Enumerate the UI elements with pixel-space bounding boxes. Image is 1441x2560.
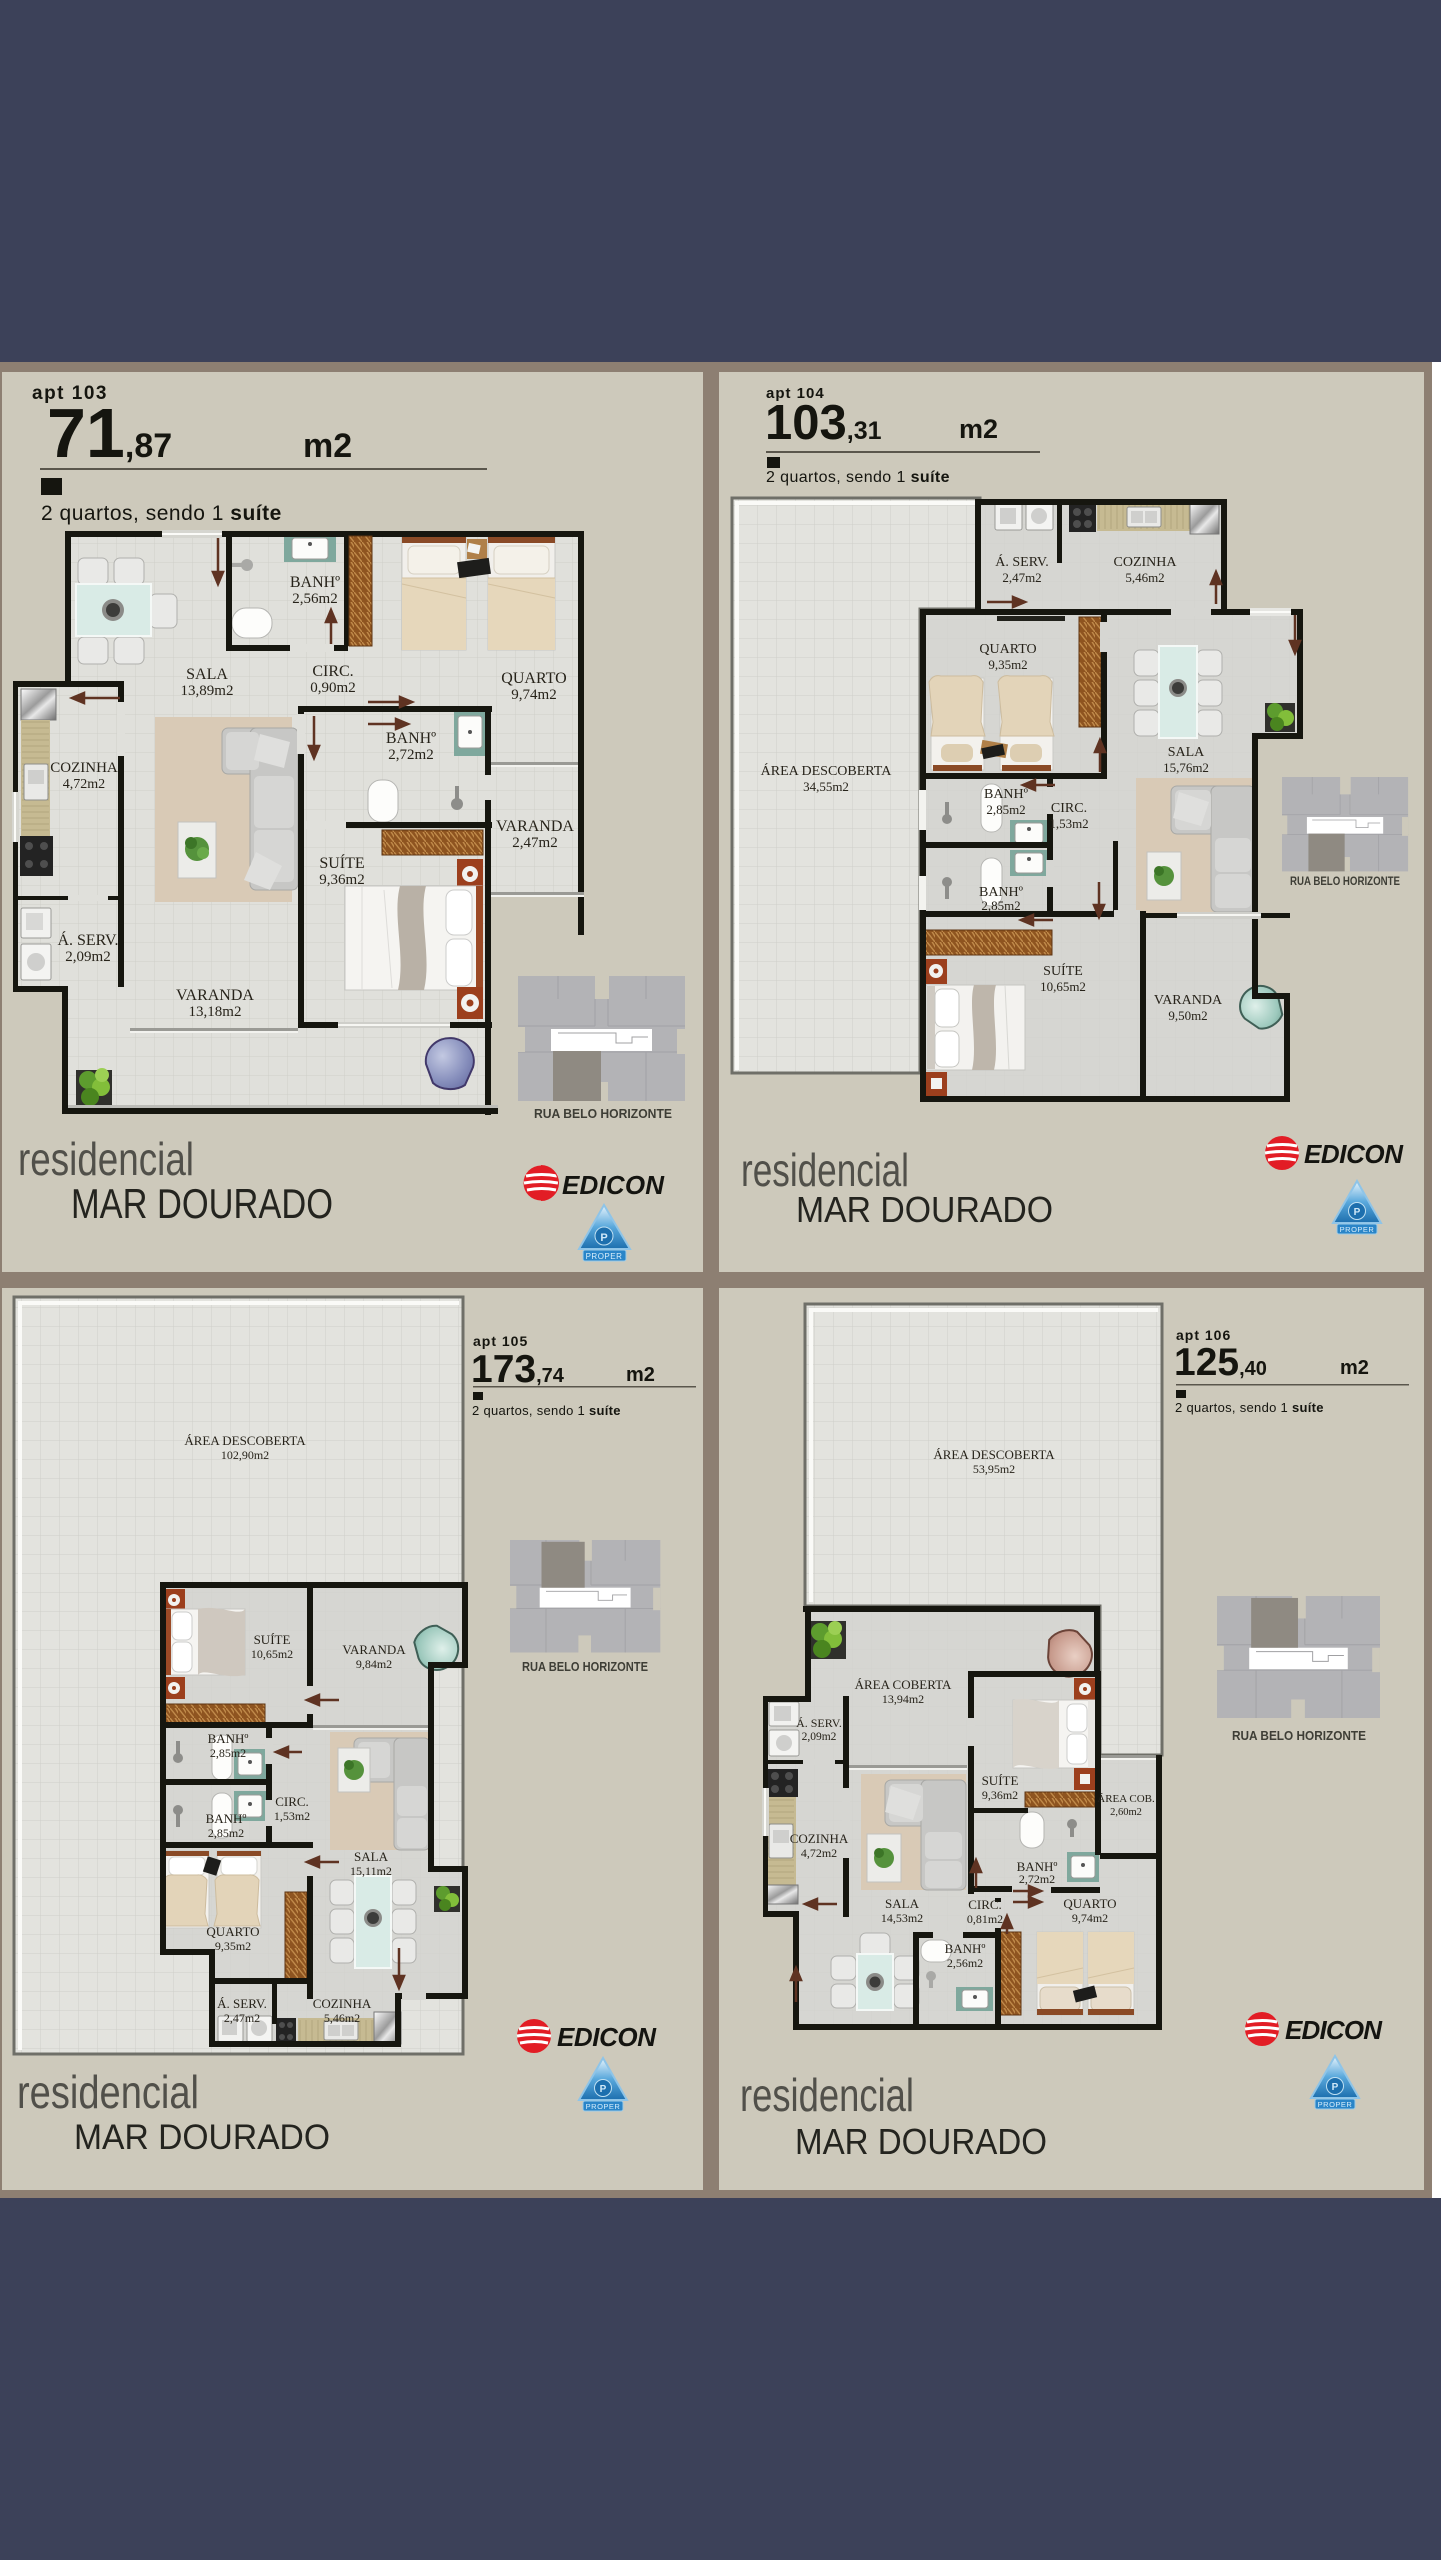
svg-text:2,56m2: 2,56m2 xyxy=(947,1956,983,1970)
svg-text:P: P xyxy=(1354,1207,1361,1218)
svg-text:COZINHA: COZINHA xyxy=(313,1996,372,2011)
svg-text:9,35m2: 9,35m2 xyxy=(215,1939,251,1953)
svg-text:P: P xyxy=(600,1232,607,1244)
svg-text:0,90m2: 0,90m2 xyxy=(310,680,355,696)
svg-text:5,46m2: 5,46m2 xyxy=(324,2011,360,2025)
svg-text:CIRC.: CIRC. xyxy=(968,1897,1002,1912)
svg-text:RUA BELO HORIZONTE: RUA BELO HORIZONTE xyxy=(1290,874,1400,888)
svg-text:2,85m2: 2,85m2 xyxy=(986,802,1025,817)
svg-text:PROPER: PROPER xyxy=(1318,2100,1353,2109)
svg-text:BANHº: BANHº xyxy=(208,1731,249,1746)
svg-text:2,47m2: 2,47m2 xyxy=(224,2011,260,2025)
svg-text:2,85m2: 2,85m2 xyxy=(208,1826,244,1840)
svg-text:102,90m2: 102,90m2 xyxy=(221,1448,269,1462)
svg-text:SUÍTE: SUÍTE xyxy=(1043,962,1083,979)
svg-text:PROPER: PROPER xyxy=(1340,1225,1375,1234)
svg-text:BANHº: BANHº xyxy=(984,787,1029,802)
svg-text:125,40: 125,40 xyxy=(1174,1341,1267,1384)
svg-text:m2: m2 xyxy=(626,1364,655,1386)
svg-text:2,47m2: 2,47m2 xyxy=(512,835,557,851)
svg-text:EDICON: EDICON xyxy=(562,1170,665,1200)
svg-text:9,36m2: 9,36m2 xyxy=(319,872,364,888)
svg-text:2,72m2: 2,72m2 xyxy=(1019,1872,1055,1886)
svg-text:13,18m2: 13,18m2 xyxy=(189,1004,242,1020)
svg-text:10,65m2: 10,65m2 xyxy=(251,1647,293,1661)
svg-text:apt 105: apt 105 xyxy=(473,1333,528,1349)
svg-text:QUARTO: QUARTO xyxy=(979,642,1036,657)
svg-text:PROPER: PROPER xyxy=(586,2102,621,2111)
svg-text:15,11m2: 15,11m2 xyxy=(350,1864,392,1878)
svg-text:SALA: SALA xyxy=(186,666,228,683)
svg-text:2 quartos, sendo 1 suíte: 2 quartos, sendo 1 suíte xyxy=(41,502,282,525)
svg-text:5,46m2: 5,46m2 xyxy=(1125,570,1164,585)
svg-text:14,53m2: 14,53m2 xyxy=(881,1911,923,1925)
svg-text:71,87: 71,87 xyxy=(47,394,172,472)
svg-text:2 quartos, sendo 1 suíte: 2 quartos, sendo 1 suíte xyxy=(1175,1400,1324,1415)
svg-text:9,84m2: 9,84m2 xyxy=(356,1657,392,1671)
svg-text:4,72m2: 4,72m2 xyxy=(63,777,105,792)
svg-text:2,47m2: 2,47m2 xyxy=(1002,570,1041,585)
svg-text:MAR DOURADO: MAR DOURADO xyxy=(795,2121,1047,2162)
svg-text:COZINHA: COZINHA xyxy=(790,1831,849,1846)
svg-text:34,55m2: 34,55m2 xyxy=(803,779,849,794)
svg-text:MAR DOURADO: MAR DOURADO xyxy=(71,1180,333,1227)
svg-text:2,72m2: 2,72m2 xyxy=(388,747,433,763)
svg-text:MAR DOURADO: MAR DOURADO xyxy=(74,2118,330,2157)
svg-text:9,35m2: 9,35m2 xyxy=(988,657,1027,672)
svg-text:13,89m2: 13,89m2 xyxy=(181,683,234,699)
svg-text:RUA BELO HORIZONTE: RUA BELO HORIZONTE xyxy=(1232,1728,1366,1743)
svg-text:BANHº: BANHº xyxy=(206,1811,247,1826)
svg-text:VARANDA: VARANDA xyxy=(176,987,254,1004)
svg-text:2,09m2: 2,09m2 xyxy=(65,949,110,965)
svg-text:QUARTO: QUARTO xyxy=(1063,1896,1116,1911)
svg-text:1,53m2: 1,53m2 xyxy=(274,1809,310,1823)
svg-text:9,74m2: 9,74m2 xyxy=(1072,1911,1108,1925)
svg-text:2,09m2: 2,09m2 xyxy=(802,1731,837,1743)
svg-text:EDICON: EDICON xyxy=(1285,2015,1383,2045)
svg-text:ÁREA DESCOBERTA: ÁREA DESCOBERTA xyxy=(184,1433,306,1448)
svg-text:SUÍTE: SUÍTE xyxy=(319,853,364,872)
svg-text:m2: m2 xyxy=(303,427,352,465)
svg-text:Á. SERV.: Á. SERV. xyxy=(796,1716,842,1730)
svg-text:103,31: 103,31 xyxy=(765,396,882,450)
svg-text:BANHº: BANHº xyxy=(386,730,436,747)
svg-text:residencial: residencial xyxy=(17,2066,199,2118)
svg-text:MAR DOURADO: MAR DOURADO xyxy=(796,1189,1053,1230)
svg-text:9,50m2: 9,50m2 xyxy=(1168,1008,1207,1023)
svg-text:173,74: 173,74 xyxy=(471,1348,565,1391)
svg-text:PROPER: PROPER xyxy=(586,1252,623,1261)
svg-text:VARANDA: VARANDA xyxy=(342,1642,406,1657)
svg-text:13,94m2: 13,94m2 xyxy=(882,1692,924,1706)
svg-text:ÁREA DESCOBERTA: ÁREA DESCOBERTA xyxy=(761,762,893,779)
svg-text:m2: m2 xyxy=(959,414,998,444)
svg-text:2,60m2: 2,60m2 xyxy=(1110,1807,1142,1818)
svg-text:Á. SERV.: Á. SERV. xyxy=(57,930,118,949)
svg-text:ÁREA COBERTA: ÁREA COBERTA xyxy=(855,1677,952,1692)
svg-text:9,74m2: 9,74m2 xyxy=(511,687,556,703)
svg-text:VARANDA: VARANDA xyxy=(496,818,574,835)
svg-text:ÁREA DESCOBERTA: ÁREA DESCOBERTA xyxy=(933,1447,1055,1462)
svg-text:VARANDA: VARANDA xyxy=(1154,993,1223,1008)
svg-text:2 quartos, sendo 1 suíte: 2 quartos, sendo 1 suíte xyxy=(472,1403,621,1418)
svg-text:EDICON: EDICON xyxy=(1304,1139,1404,1169)
svg-text:Á. SERV.: Á. SERV. xyxy=(995,553,1048,570)
svg-text:2,85m2: 2,85m2 xyxy=(981,898,1020,913)
svg-text:0,81m2: 0,81m2 xyxy=(967,1912,1003,1926)
svg-text:QUARTO: QUARTO xyxy=(206,1924,259,1939)
svg-text:QUARTO: QUARTO xyxy=(501,670,566,687)
svg-text:residencial: residencial xyxy=(740,2069,914,2121)
svg-text:15,76m2: 15,76m2 xyxy=(1163,760,1209,775)
svg-text:COZINHA: COZINHA xyxy=(1114,555,1178,570)
svg-text:2,56m2: 2,56m2 xyxy=(292,591,337,607)
svg-text:P: P xyxy=(1332,2082,1339,2093)
svg-text:RUA BELO HORIZONTE: RUA BELO HORIZONTE xyxy=(522,1660,648,1674)
svg-text:2 quartos, sendo 1 suíte: 2 quartos, sendo 1 suíte xyxy=(766,469,950,486)
svg-text:9,36m2: 9,36m2 xyxy=(982,1788,1018,1802)
svg-text:residencial: residencial xyxy=(18,1133,194,1185)
svg-text:COZINHA: COZINHA xyxy=(50,760,118,776)
svg-text:2,85m2: 2,85m2 xyxy=(210,1746,246,1760)
svg-text:SALA: SALA xyxy=(885,1896,920,1911)
svg-text:1,53m2: 1,53m2 xyxy=(1049,816,1088,831)
svg-text:SUÍTE: SUÍTE xyxy=(254,1632,291,1647)
svg-text:CIRC.: CIRC. xyxy=(275,1794,309,1809)
svg-text:m2: m2 xyxy=(1340,1357,1369,1379)
svg-text:4,72m2: 4,72m2 xyxy=(801,1846,837,1860)
svg-text:10,65m2: 10,65m2 xyxy=(1040,979,1086,994)
svg-text:Á. SERV.: Á. SERV. xyxy=(217,1996,267,2011)
svg-text:SUÍTE: SUÍTE xyxy=(982,1773,1019,1788)
svg-text:SALA: SALA xyxy=(354,1849,389,1864)
svg-text:RUA BELO HORIZONTE: RUA BELO HORIZONTE xyxy=(534,1106,672,1121)
svg-text:SALA: SALA xyxy=(1168,745,1205,760)
svg-text:53,95m2: 53,95m2 xyxy=(973,1462,1015,1476)
svg-text:CIRC.: CIRC. xyxy=(1051,801,1087,816)
svg-text:BANHº: BANHº xyxy=(290,574,340,591)
svg-text:EDICON: EDICON xyxy=(557,2022,657,2052)
svg-text:P: P xyxy=(600,2084,607,2095)
svg-text:ÁREA COB.: ÁREA COB. xyxy=(1097,1793,1155,1805)
svg-text:BANHº: BANHº xyxy=(945,1941,986,1956)
svg-text:CIRC.: CIRC. xyxy=(312,663,353,680)
